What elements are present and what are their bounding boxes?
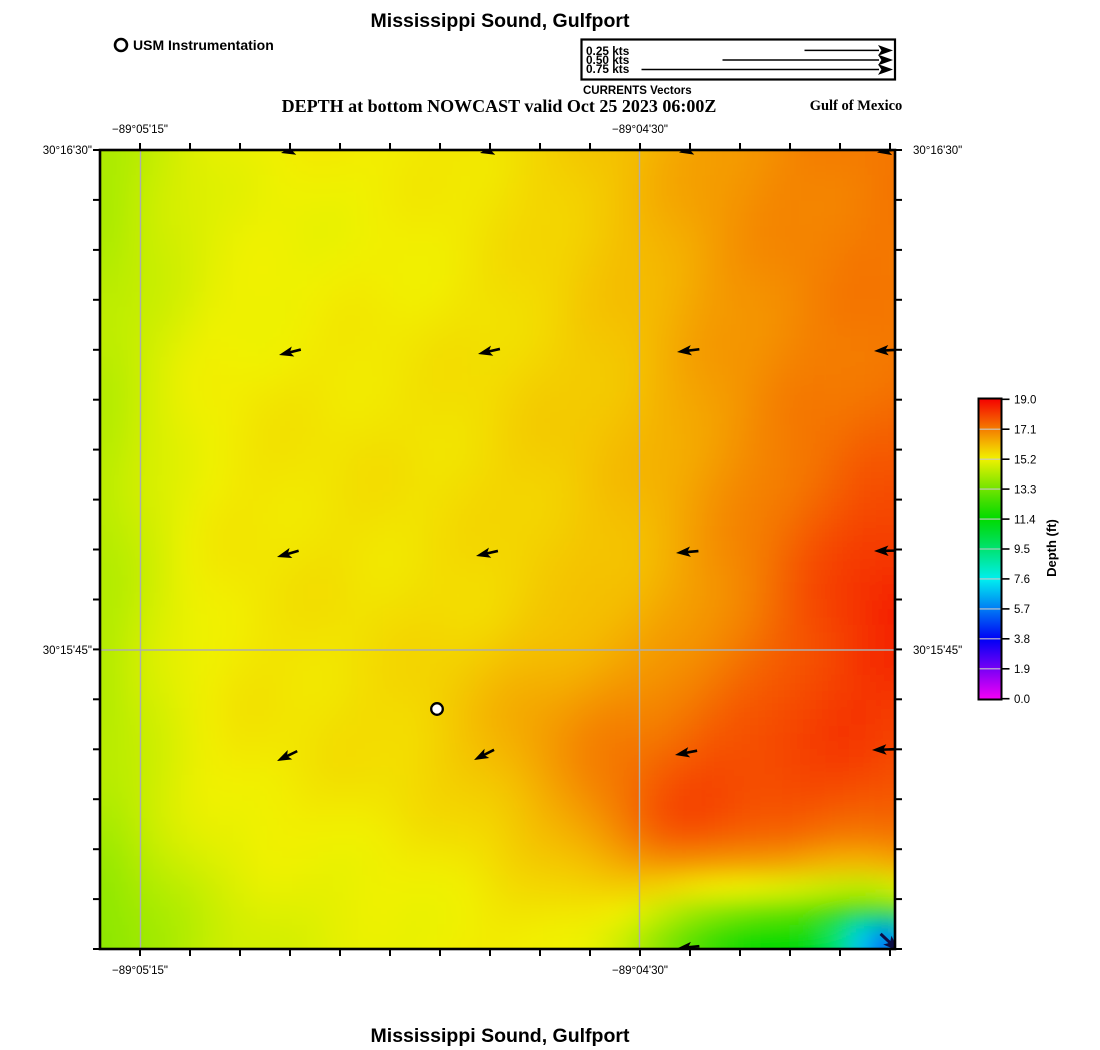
svg-text:19.0: 19.0 [1014, 395, 1036, 407]
svg-text:Depth (ft): Depth (ft) [1044, 519, 1059, 577]
svg-text:5.7: 5.7 [1014, 604, 1030, 616]
svg-text:9.5: 9.5 [1014, 544, 1030, 556]
svg-text:0.75 kts: 0.75 kts [586, 62, 630, 76]
svg-text:30°16'30": 30°16'30" [43, 145, 92, 157]
svg-text:Gulf of Mexico: Gulf of Mexico [810, 98, 903, 114]
svg-text:11.4: 11.4 [1014, 514, 1036, 526]
svg-text:−89°05'15": −89°05'15" [112, 124, 168, 136]
svg-text:30°16'30": 30°16'30" [913, 145, 962, 157]
svg-text:1.9: 1.9 [1014, 664, 1030, 676]
svg-text:Mississippi Sound, Gulfport: Mississippi Sound, Gulfport [371, 10, 630, 32]
svg-text:USM Instrumentation: USM Instrumentation [133, 37, 274, 53]
svg-text:13.3: 13.3 [1014, 484, 1036, 496]
svg-text:−89°04'30": −89°04'30" [612, 124, 668, 136]
svg-text:30°15'45": 30°15'45" [43, 645, 92, 657]
svg-text:−89°05'15": −89°05'15" [112, 965, 168, 977]
svg-text:30°15'45": 30°15'45" [913, 645, 962, 657]
svg-text:−89°04'30": −89°04'30" [612, 965, 668, 977]
svg-text:DEPTH at bottom NOWCAST valid: DEPTH at bottom NOWCAST valid Oct 25 202… [282, 96, 717, 116]
svg-text:7.6: 7.6 [1014, 574, 1030, 586]
svg-text:15.2: 15.2 [1014, 454, 1036, 466]
svg-text:3.8: 3.8 [1014, 634, 1030, 646]
svg-text:0.0: 0.0 [1014, 694, 1030, 706]
svg-text:Mississippi Sound, Gulfport: Mississippi Sound, Gulfport [371, 1025, 630, 1047]
svg-text:17.1: 17.1 [1014, 424, 1036, 436]
